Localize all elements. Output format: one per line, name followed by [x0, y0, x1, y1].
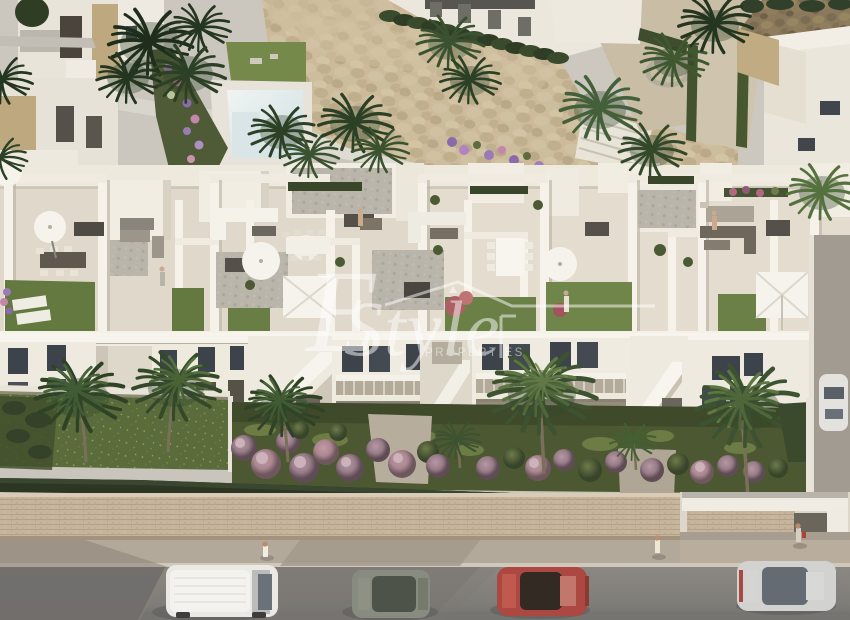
svg-text:PROPERTIES: PROPERTIES — [425, 347, 525, 359]
